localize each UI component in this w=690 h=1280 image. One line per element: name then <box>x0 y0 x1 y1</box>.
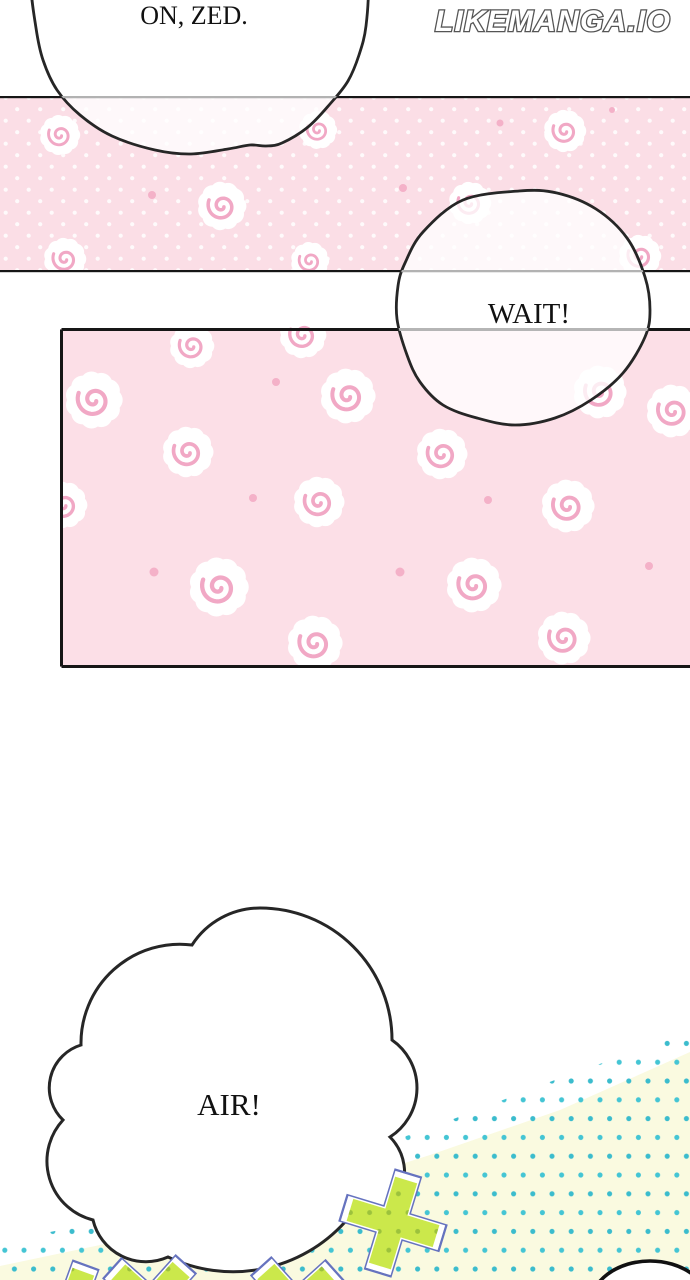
svg-text:LIKEMANGA.IO: LIKEMANGA.IO <box>435 5 671 38</box>
svg-text:ON, ZED.: ON, ZED. <box>140 1 248 30</box>
svg-text:AIR!: AIR! <box>197 1087 261 1122</box>
svg-text:WAIT!: WAIT! <box>488 298 570 330</box>
